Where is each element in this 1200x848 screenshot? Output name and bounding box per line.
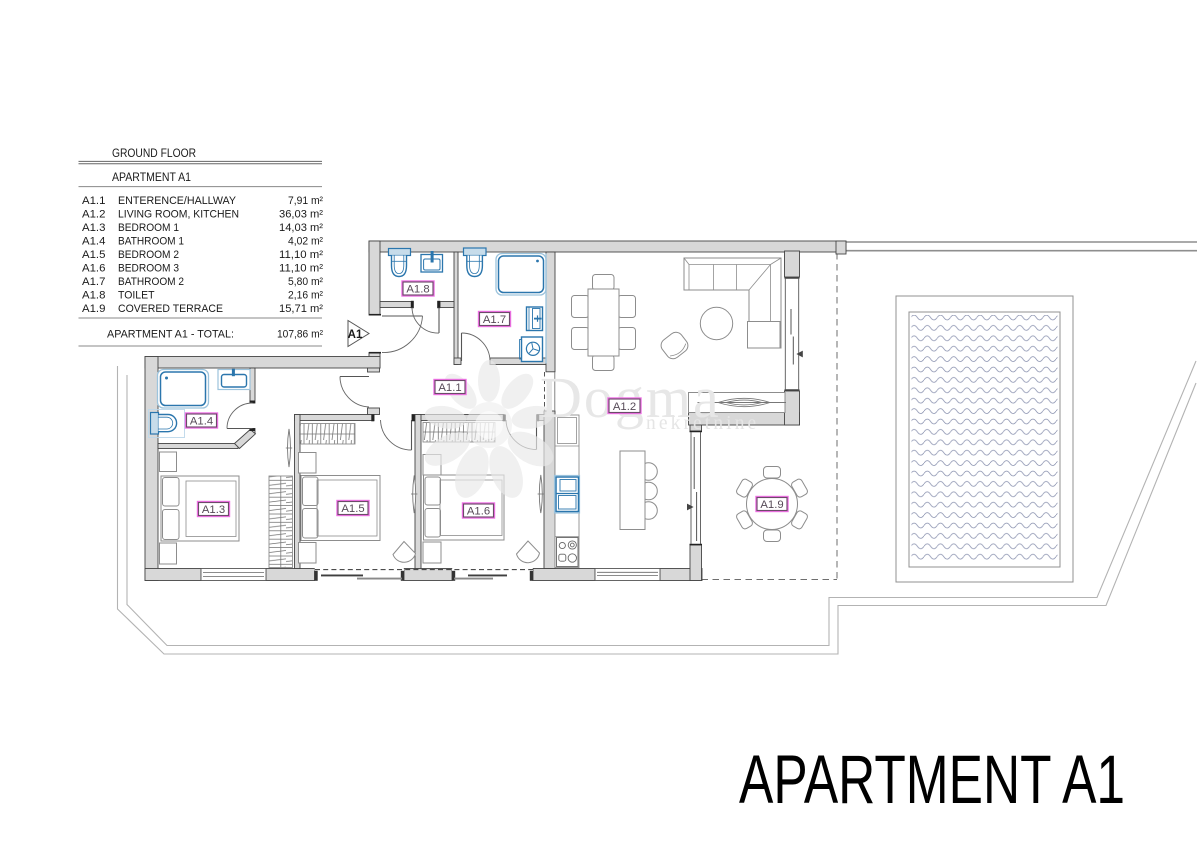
svg-text:BEDROOM 2: BEDROOM 2	[118, 249, 179, 261]
svg-text:11,10 m²: 11,10 m²	[279, 263, 323, 275]
svg-text:A1.8: A1.8	[82, 290, 105, 302]
svg-text:A1.9: A1.9	[82, 303, 105, 315]
svg-text:15,71 m²: 15,71 m²	[279, 303, 323, 315]
svg-text:A1.3: A1.3	[82, 222, 105, 234]
svg-text:A1.4: A1.4	[82, 236, 105, 248]
svg-text:A1.2: A1.2	[82, 209, 105, 221]
svg-text:107,86 m²: 107,86 m²	[277, 329, 323, 341]
svg-text:COVERED TERRACE: COVERED TERRACE	[118, 303, 223, 315]
svg-text:nekretnine: nekretnine	[646, 413, 759, 434]
svg-text:2,16 m²: 2,16 m²	[288, 290, 323, 302]
svg-text:A1: A1	[348, 329, 363, 341]
svg-text:7,91 m²: 7,91 m²	[288, 195, 323, 207]
svg-text:APARTMENT A1: APARTMENT A1	[739, 741, 1125, 818]
svg-text:TOILET: TOILET	[118, 290, 155, 302]
svg-text:A1.3: A1.3	[202, 504, 225, 516]
svg-text:A1.4: A1.4	[190, 416, 213, 428]
svg-text:11,10 m²: 11,10 m²	[279, 249, 323, 261]
svg-text:A1.2: A1.2	[613, 401, 636, 413]
svg-text:A1.7: A1.7	[483, 314, 506, 326]
svg-text:A1.8: A1.8	[406, 284, 429, 296]
svg-text:36,03 m²: 36,03 m²	[279, 209, 323, 221]
svg-text:A1.9: A1.9	[760, 499, 783, 511]
svg-text:A1.5: A1.5	[82, 249, 105, 261]
svg-text:4,02 m²: 4,02 m²	[288, 236, 323, 248]
svg-text:BEDROOM 1: BEDROOM 1	[118, 222, 179, 234]
svg-text:5,80 m²: 5,80 m²	[288, 276, 323, 288]
svg-text:14,03 m²: 14,03 m²	[279, 222, 323, 234]
svg-text:A1.5: A1.5	[341, 503, 364, 515]
svg-text:A1.1: A1.1	[438, 382, 461, 394]
svg-text:BATHROOM 2: BATHROOM 2	[118, 276, 184, 288]
svg-text:A1.6: A1.6	[82, 263, 105, 275]
svg-text:BATHROOM 1: BATHROOM 1	[118, 236, 184, 248]
svg-text:APARTMENT A1 - TOTAL:: APARTMENT A1 - TOTAL:	[107, 329, 234, 341]
svg-text:A1.7: A1.7	[82, 276, 105, 288]
svg-text:APARTMENT A1: APARTMENT A1	[112, 170, 191, 184]
svg-text:BEDROOM 3: BEDROOM 3	[118, 263, 179, 275]
svg-text:A1.1: A1.1	[82, 195, 105, 207]
svg-text:GROUND FLOOR: GROUND FLOOR	[112, 146, 196, 160]
svg-text:ENTERENCE/HALLWAY: ENTERENCE/HALLWAY	[118, 195, 236, 207]
svg-text:A1.6: A1.6	[467, 506, 490, 518]
svg-text:LIVING ROOM, KITCHEN: LIVING ROOM, KITCHEN	[118, 209, 239, 221]
